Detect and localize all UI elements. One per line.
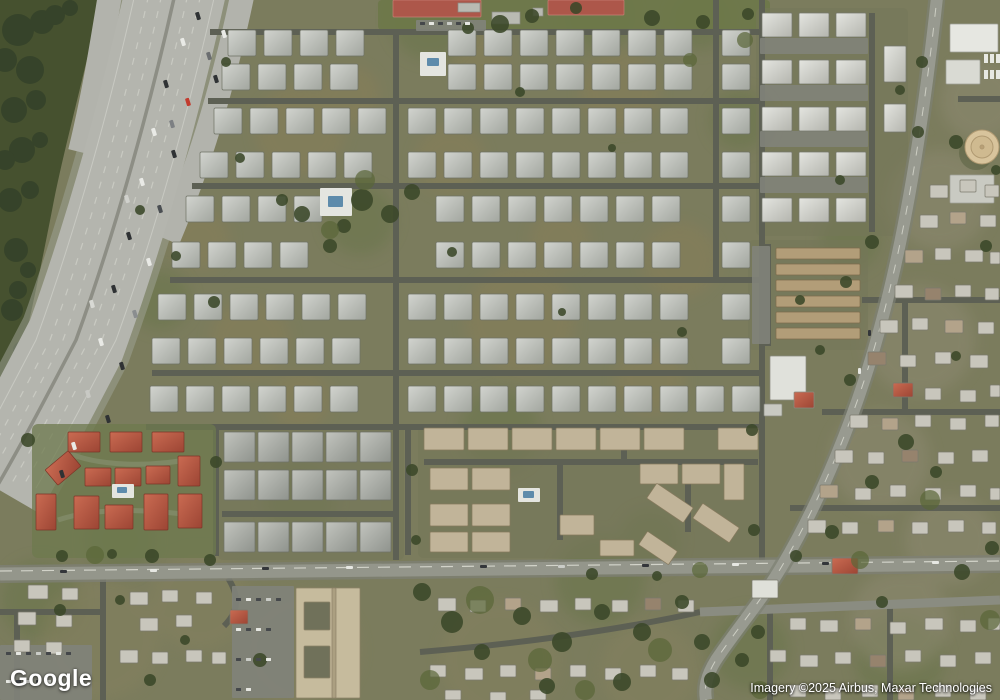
water-tank (965, 130, 999, 164)
map-canvas (0, 0, 1000, 700)
office-building (296, 588, 360, 698)
civic-buildings (764, 356, 814, 416)
map-layers (0, 0, 1000, 700)
townhouses (224, 432, 391, 552)
imagery-attribution: Imagery ©2025 Airbus, Maxar Technologies (750, 681, 992, 695)
satellite-map[interactable]: Google Imagery ©2025 Airbus, Maxar Techn… (0, 0, 1000, 700)
google-logo[interactable]: Google (10, 665, 92, 692)
trailer-homes (150, 30, 760, 412)
